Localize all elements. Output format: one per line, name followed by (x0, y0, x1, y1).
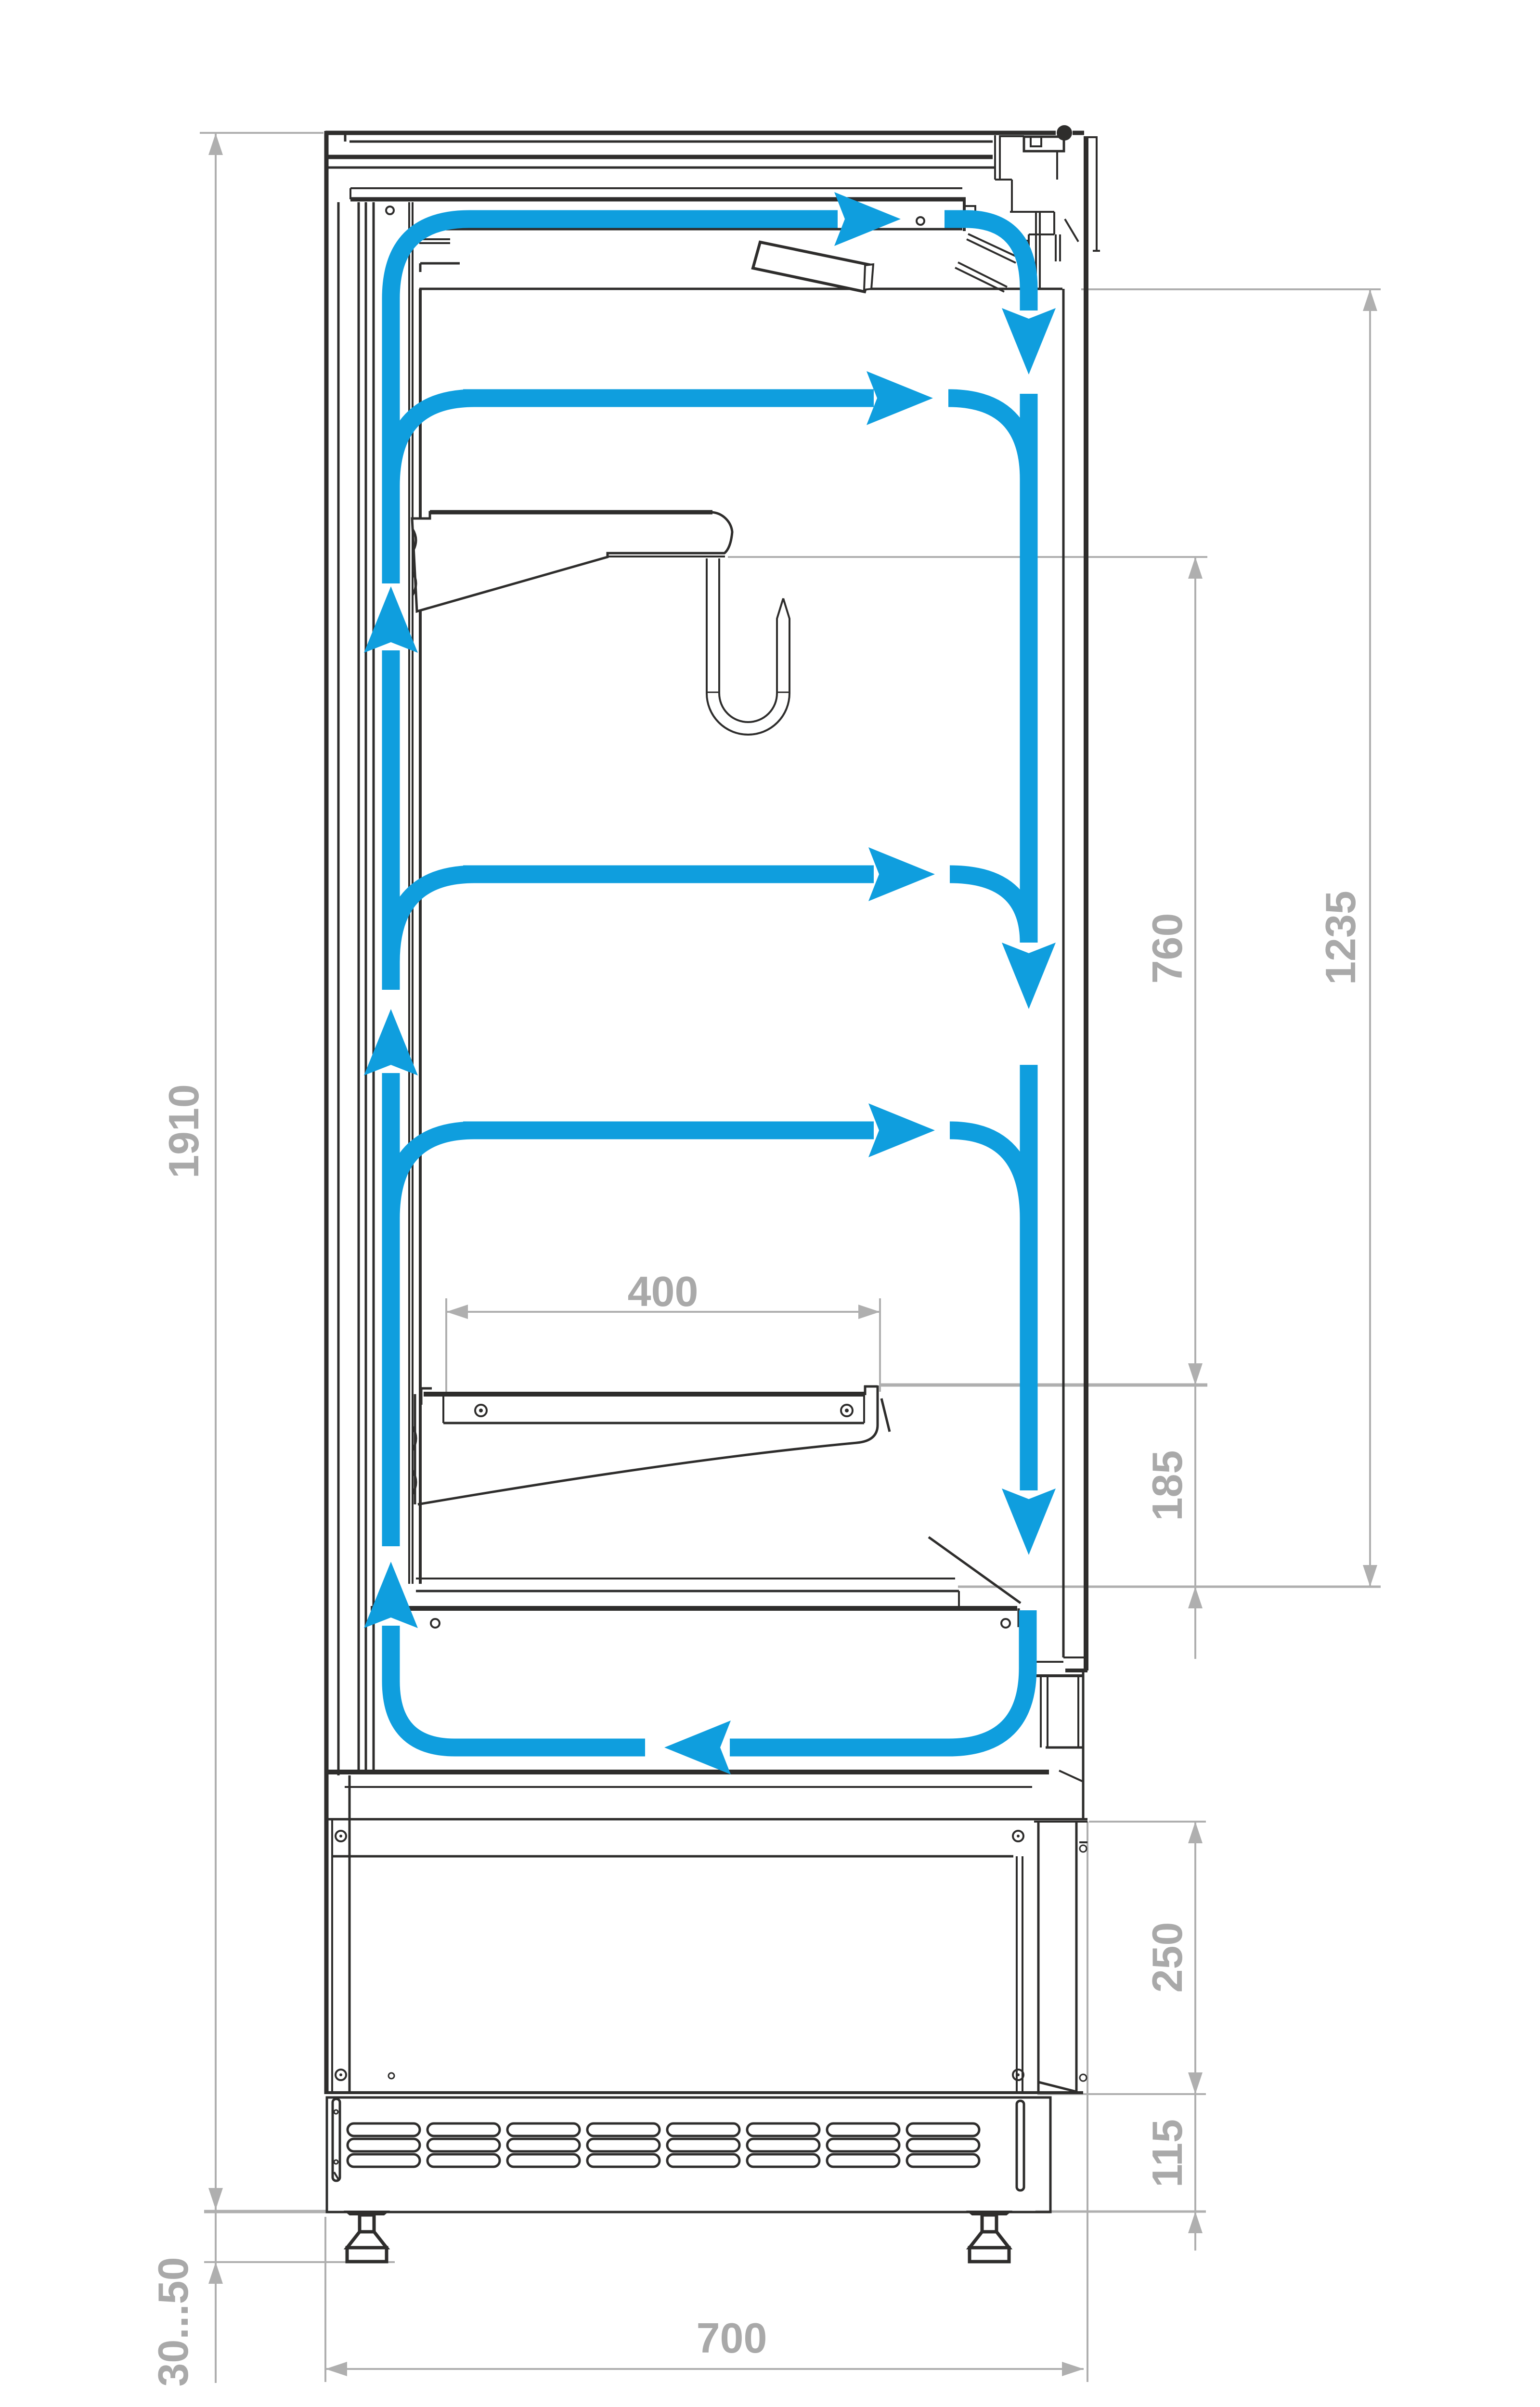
svg-text:760: 760 (1143, 913, 1191, 984)
svg-text:250: 250 (1143, 1922, 1191, 1993)
svg-text:185: 185 (1143, 1450, 1191, 1521)
svg-text:115: 115 (1143, 2119, 1191, 2187)
svg-text:400: 400 (628, 1268, 699, 1315)
svg-text:700: 700 (697, 2314, 767, 2362)
svg-text:1910: 1910 (160, 1084, 207, 1178)
svg-text:1235: 1235 (1317, 891, 1364, 985)
svg-text:30...50: 30...50 (149, 2257, 197, 2386)
